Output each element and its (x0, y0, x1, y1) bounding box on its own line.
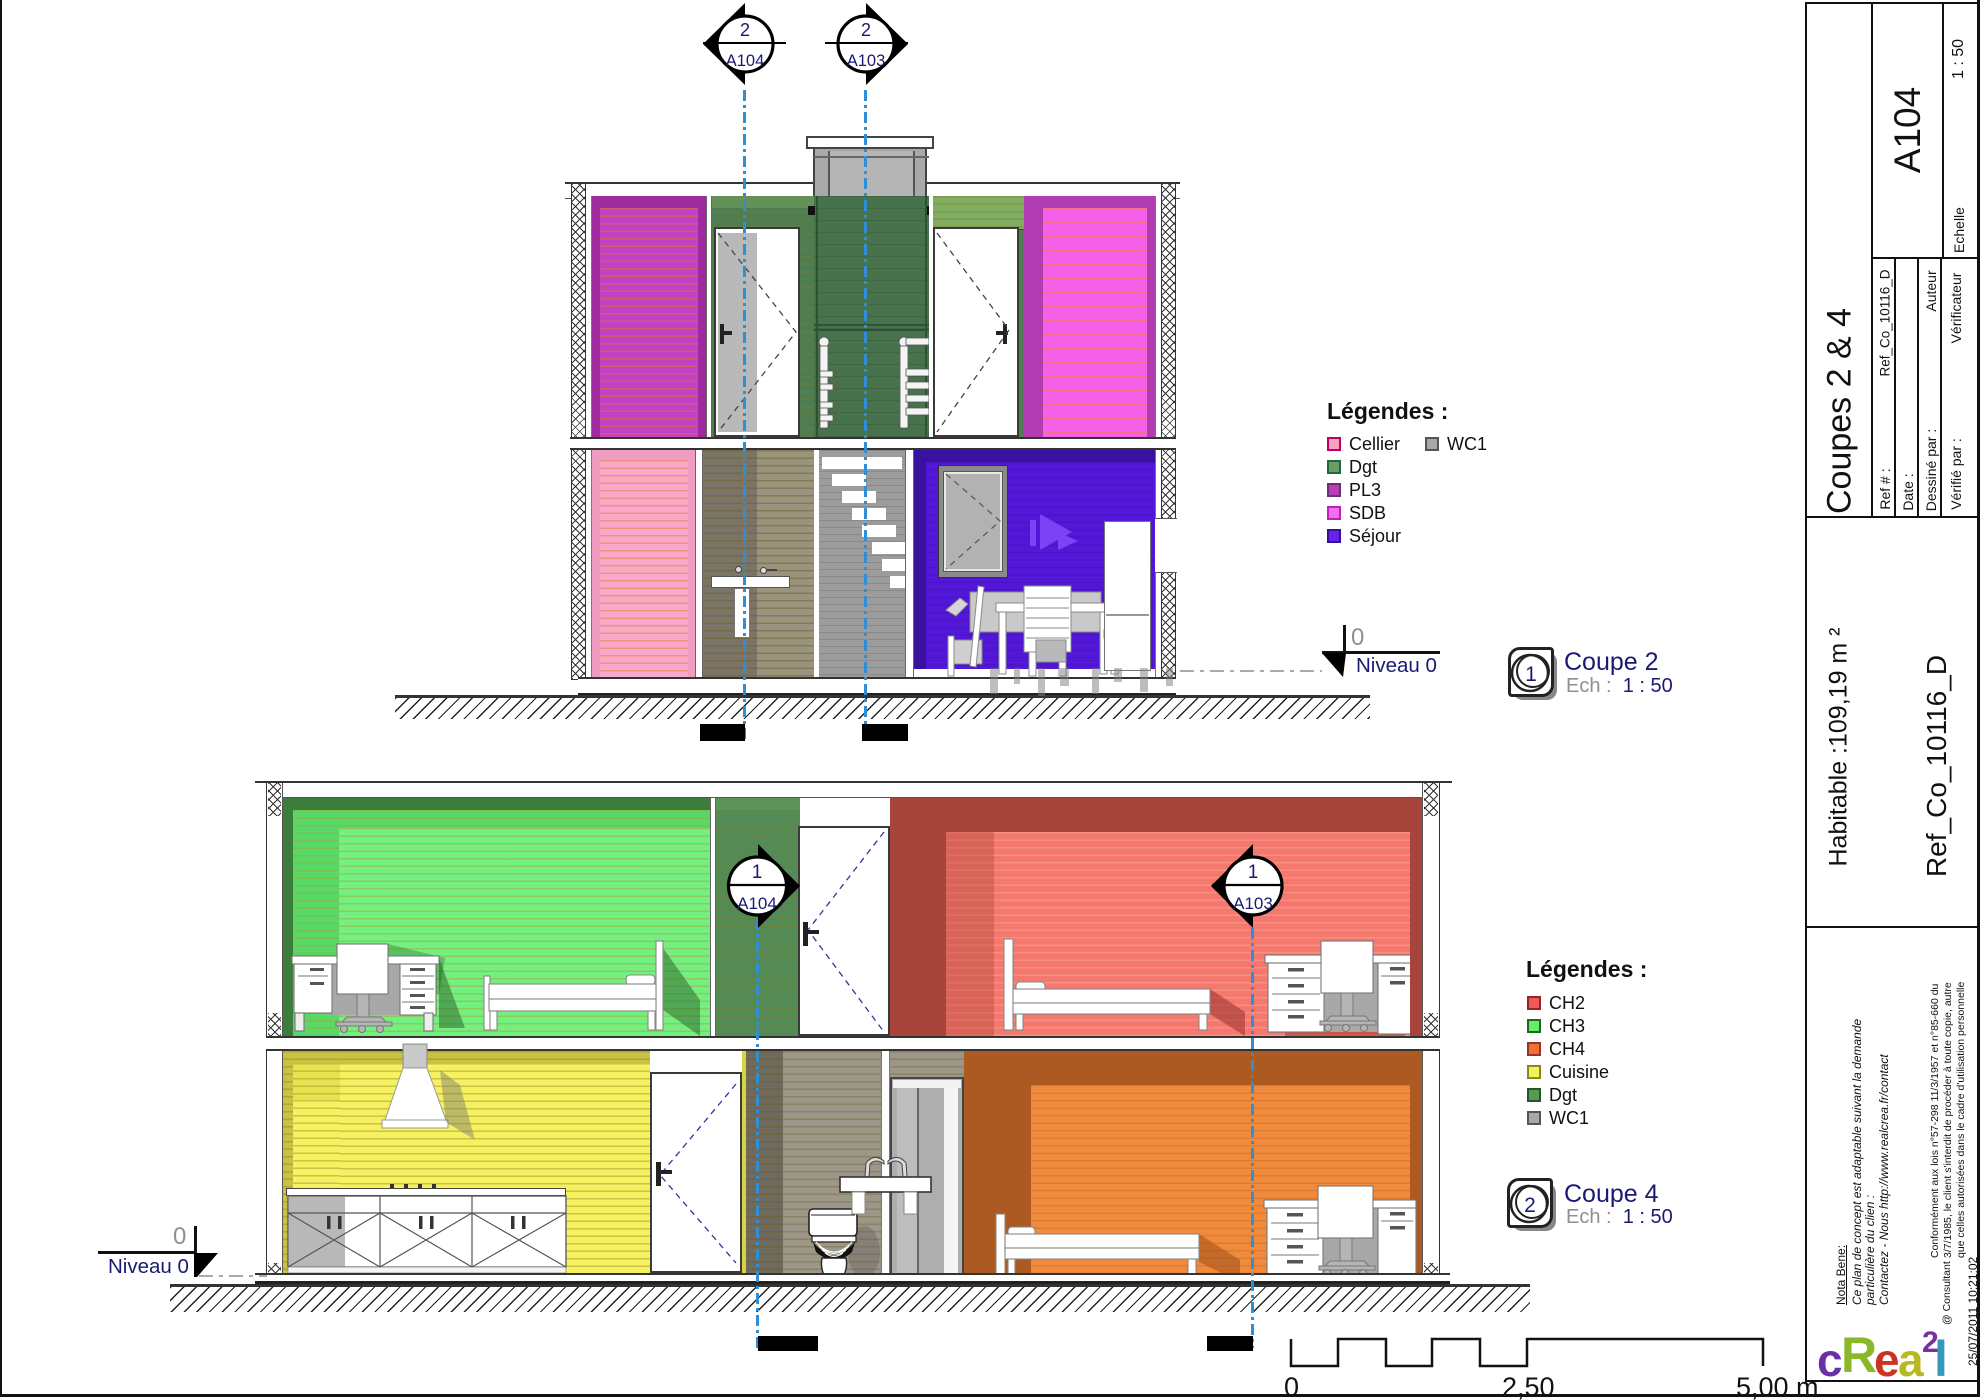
svg-text:1: 1 (1248, 862, 1259, 883)
svg-text:A103: A103 (1233, 894, 1273, 913)
